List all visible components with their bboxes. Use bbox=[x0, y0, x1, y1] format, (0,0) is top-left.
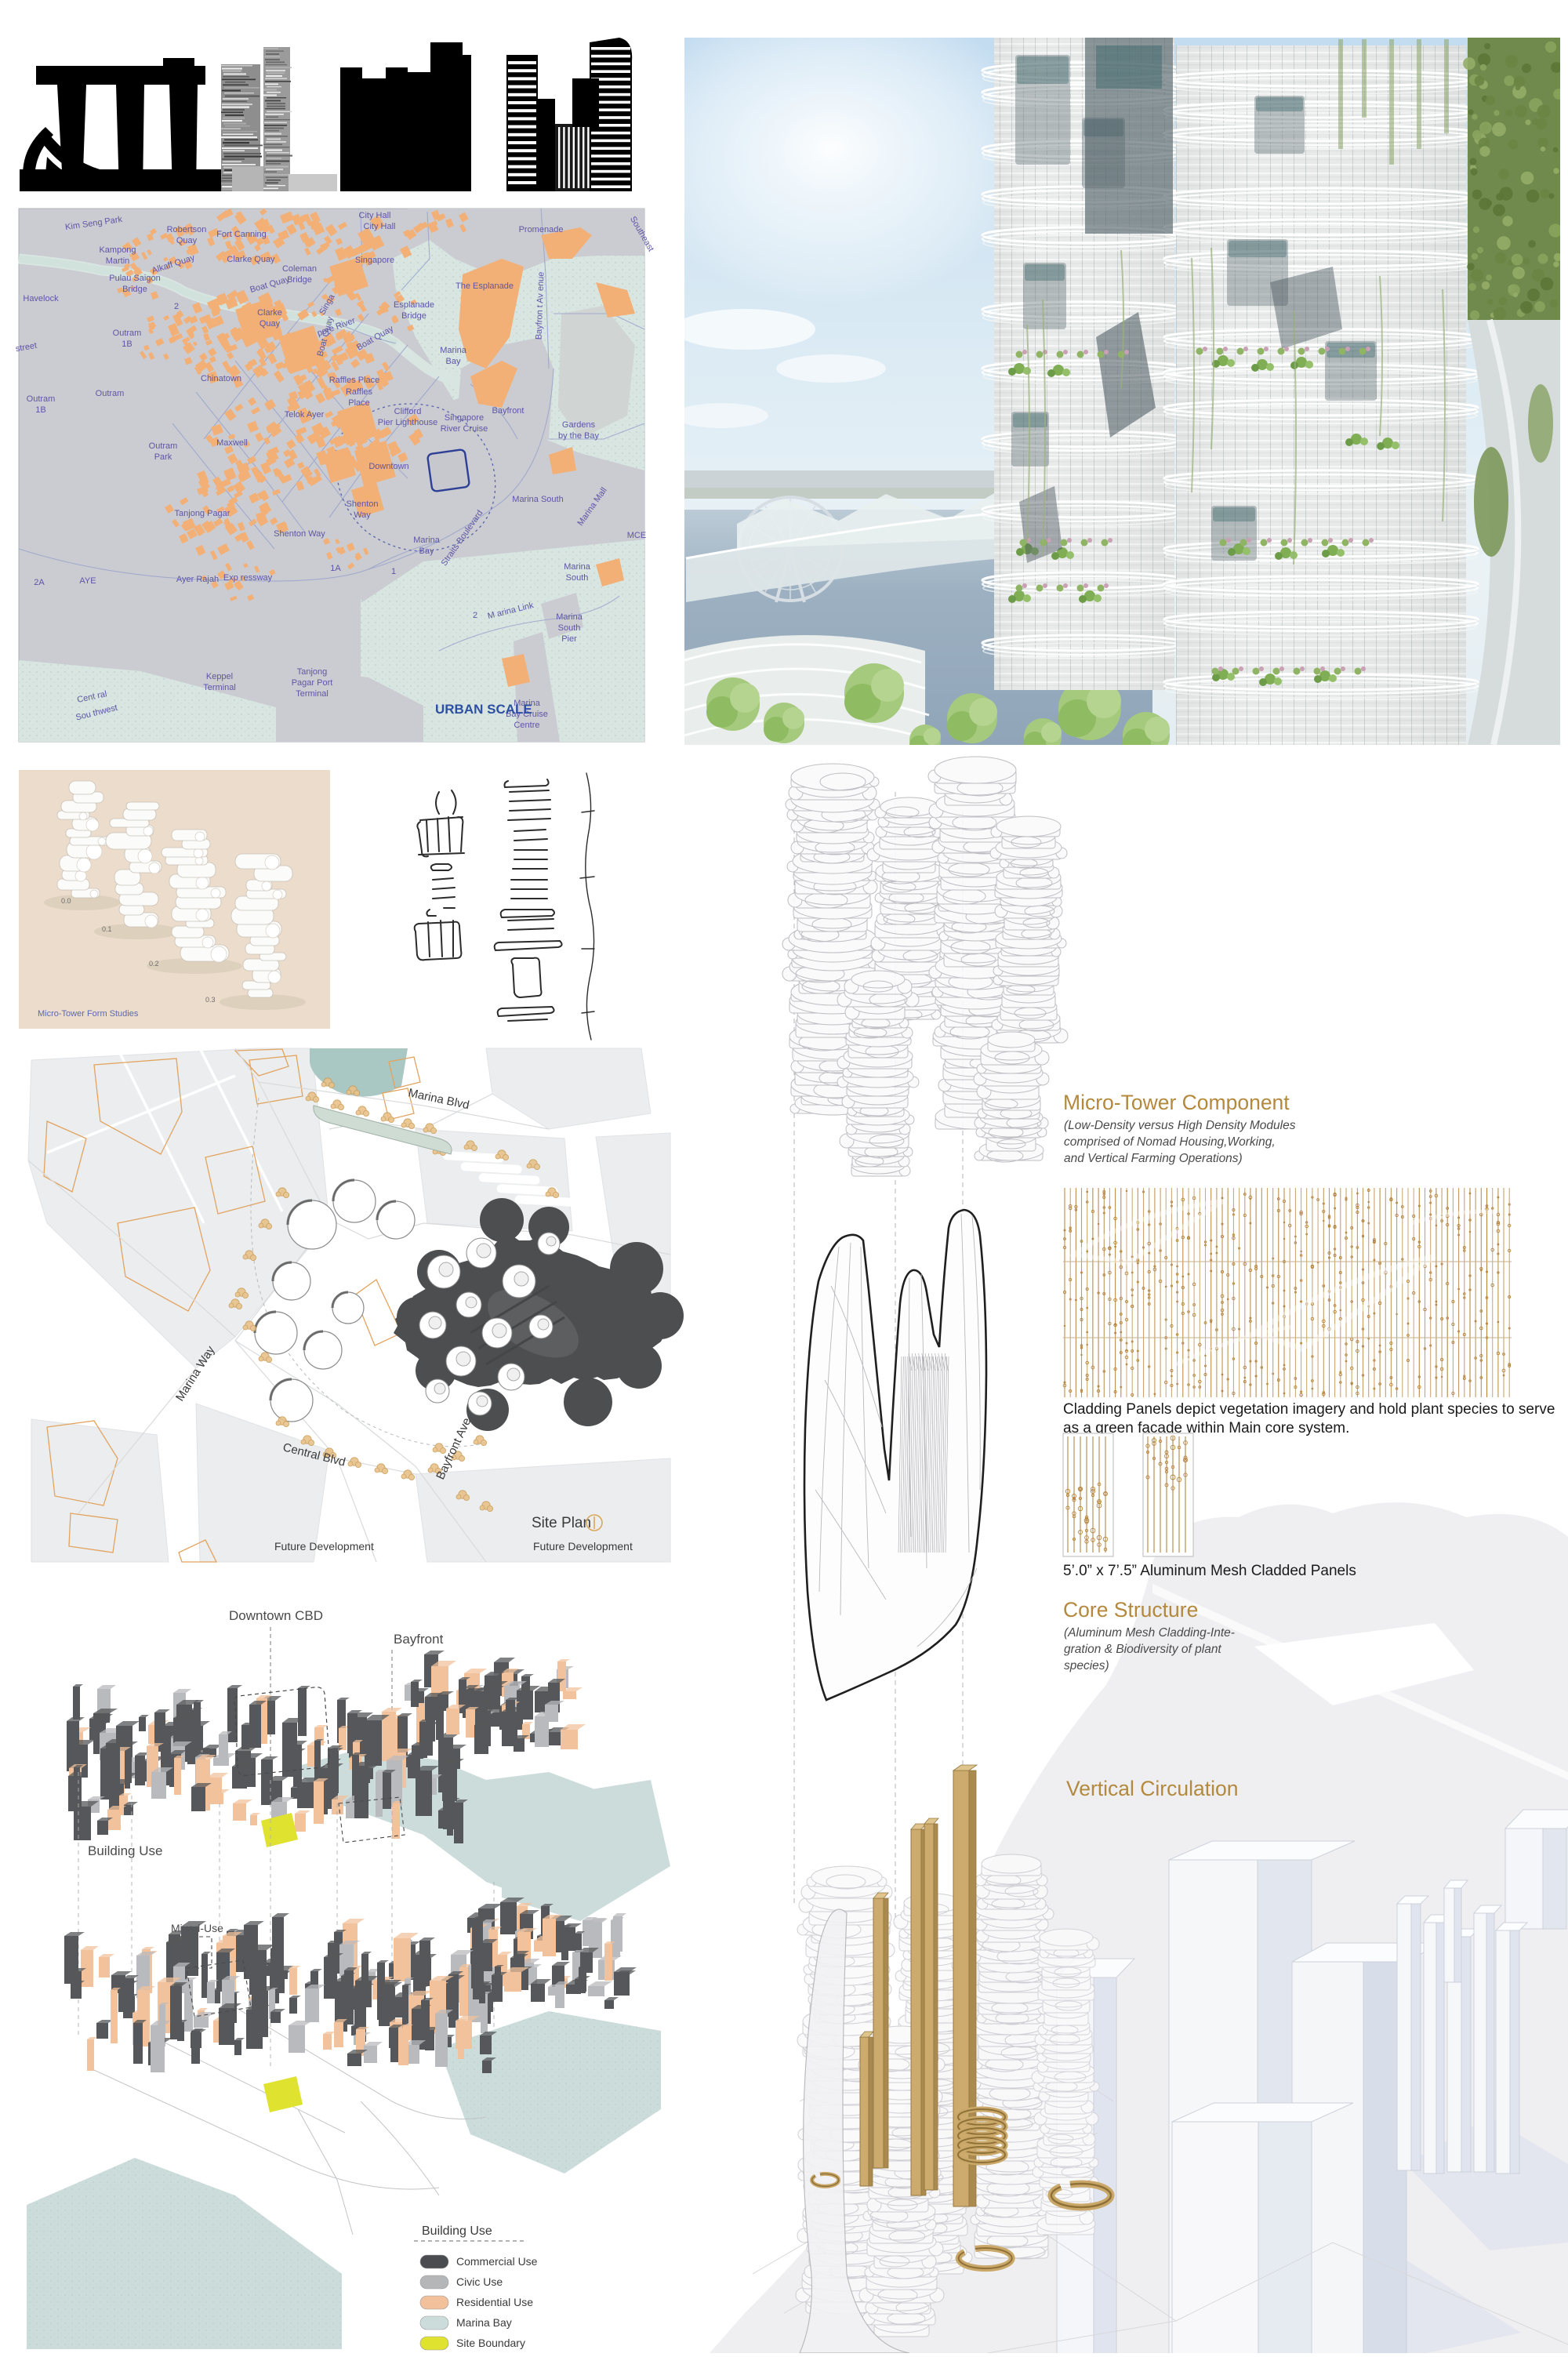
svg-text:River Cruise: River Cruise bbox=[441, 424, 488, 434]
svg-text:1A: 1A bbox=[330, 564, 341, 573]
svg-text:Bayfront: Bayfront bbox=[492, 406, 524, 416]
svg-text:Downtown CBD: Downtown CBD bbox=[229, 1608, 323, 1623]
svg-text:Maxwell: Maxwell bbox=[216, 438, 248, 448]
svg-text:Micro-Tower Form Studies: Micro-Tower Form Studies bbox=[38, 1009, 139, 1019]
svg-text:2A: 2A bbox=[34, 578, 45, 587]
svg-text:Outram: Outram bbox=[113, 329, 142, 338]
svg-text:species): species) bbox=[1064, 1659, 1109, 1672]
svg-text:URBAN SCALE: URBAN SCALE bbox=[435, 702, 532, 717]
svg-text:1B: 1B bbox=[122, 340, 132, 349]
svg-text:Cladding Panels depict vegetat: Cladding Panels depict vegetation imager… bbox=[1063, 1401, 1555, 1418]
svg-text:Tanjong Pagar: Tanjong Pagar bbox=[175, 509, 230, 518]
svg-text:Pagar Port: Pagar Port bbox=[292, 678, 333, 688]
svg-text:Place: Place bbox=[348, 398, 370, 408]
svg-text:Future Development: Future Development bbox=[274, 1540, 374, 1553]
svg-text:AYE: AYE bbox=[79, 576, 96, 586]
svg-text:South: South bbox=[566, 573, 589, 583]
svg-text:Building Use: Building Use bbox=[422, 2224, 492, 2238]
svg-text:0.3: 0.3 bbox=[205, 996, 216, 1004]
svg-text:Raffles: Raffles bbox=[346, 387, 373, 397]
svg-text:Esplanade: Esplanade bbox=[394, 300, 434, 310]
svg-text:Downtown: Downtown bbox=[368, 462, 408, 471]
svg-text:The Esplanade: The Esplanade bbox=[456, 281, 514, 291]
svg-text:Shenton: Shenton bbox=[347, 499, 379, 509]
svg-text:Vertical Circulation: Vertical Circulation bbox=[1066, 1777, 1238, 1800]
svg-text:Bay: Bay bbox=[419, 547, 434, 556]
svg-text:MCE: MCE bbox=[627, 531, 646, 540]
svg-text:Bridge: Bridge bbox=[401, 311, 426, 321]
svg-text:2: 2 bbox=[473, 611, 477, 620]
svg-text:Bridge: Bridge bbox=[122, 285, 147, 294]
svg-text:Ayer Rajah: Ayer Rajah bbox=[176, 575, 219, 584]
svg-text:Fort Canning: Fort Canning bbox=[216, 230, 267, 239]
svg-text:Centre: Centre bbox=[514, 721, 539, 730]
svg-text:Clarke Quay: Clarke Quay bbox=[227, 255, 275, 264]
svg-text:Clarke: Clarke bbox=[257, 308, 282, 318]
svg-text:Martin: Martin bbox=[106, 256, 130, 266]
svg-text:Havelock: Havelock bbox=[23, 294, 59, 303]
svg-text:(Aluminum Mesh Cladding-Inte-: (Aluminum Mesh Cladding-Inte- bbox=[1064, 1626, 1235, 1640]
svg-text:Site Plan: Site Plan bbox=[532, 1515, 591, 1531]
svg-text:0.0: 0.0 bbox=[61, 897, 71, 905]
svg-text:Terminal: Terminal bbox=[296, 689, 328, 699]
svg-text:1B: 1B bbox=[35, 405, 45, 415]
svg-text:5’.0” x 7’.5” Aluminum Mesh Cl: 5’.0” x 7’.5” Aluminum Mesh Cladded Pane… bbox=[1063, 1563, 1356, 1579]
svg-text:by the Bay: by the Bay bbox=[558, 431, 599, 441]
svg-text:Quay: Quay bbox=[176, 236, 198, 245]
svg-text:City Hall: City Hall bbox=[364, 222, 396, 231]
svg-text:(Low-Density versus High Densi: (Low-Density versus High Density Modules bbox=[1064, 1119, 1296, 1132]
svg-text:Marina Bay: Marina Bay bbox=[456, 2316, 512, 2329]
svg-text:Quay: Quay bbox=[260, 319, 281, 329]
svg-text:Marina: Marina bbox=[413, 536, 441, 545]
svg-text:Pier: Pier bbox=[561, 634, 577, 644]
svg-text:Outram: Outram bbox=[27, 394, 56, 404]
svg-text:Gardens: Gardens bbox=[562, 420, 596, 430]
svg-text:Terminal: Terminal bbox=[203, 683, 236, 692]
svg-text:Civic Use: Civic Use bbox=[456, 2275, 503, 2288]
svg-text:Marina: Marina bbox=[440, 346, 467, 355]
svg-text:Marina: Marina bbox=[564, 562, 591, 572]
svg-text:Exp ressway: Exp ressway bbox=[223, 573, 273, 583]
svg-text:Tanjong: Tanjong bbox=[297, 667, 328, 677]
svg-text:Outram: Outram bbox=[96, 389, 125, 398]
svg-text:Site Boundary: Site Boundary bbox=[456, 2337, 525, 2349]
svg-text:and Vertical Farming Operation: and Vertical Farming Operations) bbox=[1064, 1152, 1243, 1165]
svg-text:Keppel: Keppel bbox=[206, 672, 233, 681]
svg-text:Chinatown: Chinatown bbox=[201, 374, 241, 383]
svg-text:Singapore: Singapore bbox=[355, 256, 394, 265]
svg-text:Kampong: Kampong bbox=[99, 245, 136, 255]
svg-text:Way: Way bbox=[354, 510, 371, 520]
svg-text:Micro-Tower Component: Micro-Tower Component bbox=[1063, 1091, 1290, 1114]
svg-text:Singapore: Singapore bbox=[445, 413, 484, 423]
svg-text:Park: Park bbox=[154, 452, 172, 462]
svg-text:Bay: Bay bbox=[446, 357, 461, 366]
svg-text:Clifford: Clifford bbox=[394, 407, 422, 416]
svg-text:Marina: Marina bbox=[556, 612, 583, 622]
svg-text:0.1: 0.1 bbox=[102, 925, 112, 933]
svg-text:Residential Use: Residential Use bbox=[456, 2296, 533, 2308]
svg-text:comprised of Nomad Housing,Wor: comprised of Nomad Housing,Working, bbox=[1064, 1135, 1276, 1149]
svg-text:City Hall: City Hall bbox=[359, 211, 391, 220]
svg-text:Future Development: Future Development bbox=[533, 1540, 633, 1553]
svg-text:Building Use: Building Use bbox=[88, 1843, 162, 1858]
svg-text:Outram: Outram bbox=[149, 441, 178, 451]
svg-text:South: South bbox=[558, 623, 581, 633]
svg-text:Coleman: Coleman bbox=[282, 264, 317, 274]
svg-text:0.2: 0.2 bbox=[149, 960, 159, 968]
svg-text:Telok Ayer: Telok Ayer bbox=[285, 410, 325, 419]
svg-text:2: 2 bbox=[174, 302, 179, 311]
svg-text:Core Structure: Core Structure bbox=[1063, 1598, 1198, 1622]
svg-text:Commercial Use: Commercial Use bbox=[456, 2255, 538, 2268]
svg-text:Robertson: Robertson bbox=[167, 225, 207, 234]
svg-text:Marina South: Marina South bbox=[512, 495, 563, 504]
svg-text:Shenton Way: Shenton Way bbox=[274, 529, 325, 539]
svg-text:Promenade: Promenade bbox=[519, 225, 564, 234]
svg-text:1: 1 bbox=[391, 567, 396, 576]
svg-text:Bridge: Bridge bbox=[287, 275, 312, 285]
svg-text:Raffles Place: Raffles Place bbox=[329, 376, 380, 385]
svg-text:gration & Biodiversity of plan: gration & Biodiversity of plant bbox=[1064, 1643, 1221, 1656]
svg-text:Bayfront: Bayfront bbox=[394, 1632, 444, 1647]
svg-text:Pier Lighthouse: Pier Lighthouse bbox=[378, 418, 437, 427]
